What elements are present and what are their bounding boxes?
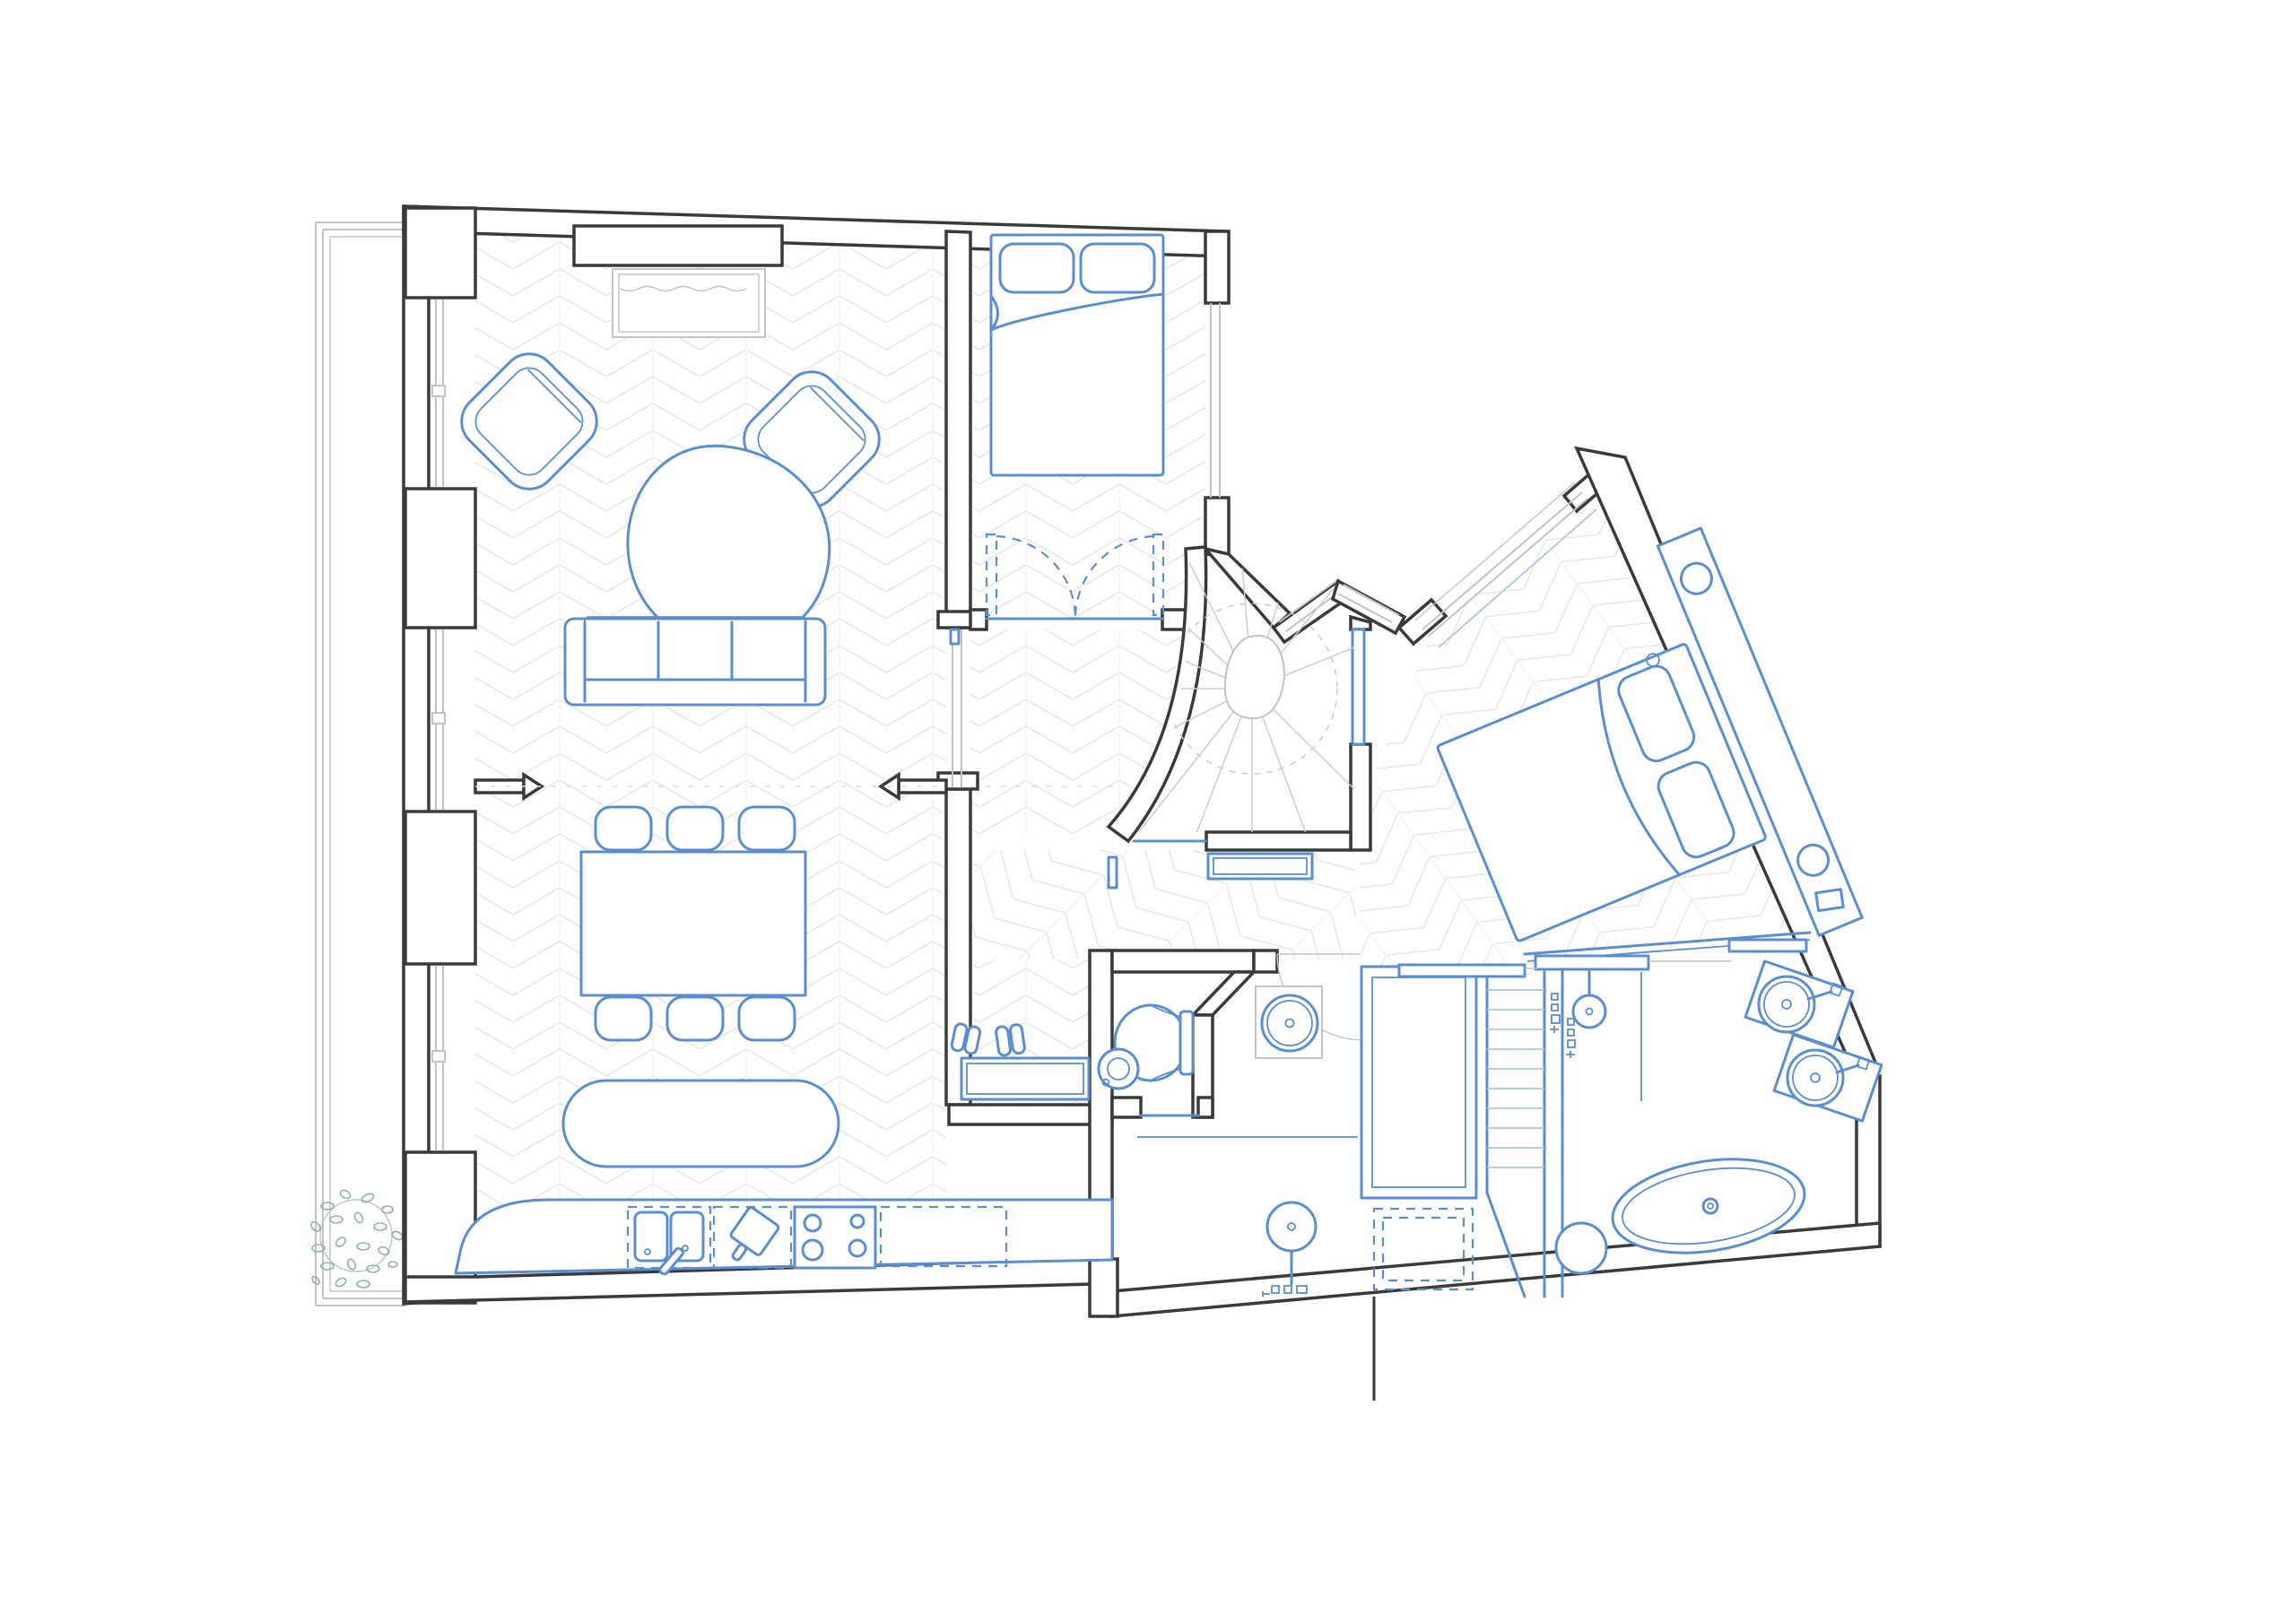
console-table: [961, 1058, 1089, 1099]
fireplace-chimney: [574, 226, 782, 265]
round-basin: [1262, 995, 1318, 1051]
chair: [596, 807, 651, 850]
bathroom: [1399, 940, 1882, 1273]
bedroom-south-wall-w: [970, 610, 987, 629]
double-bed: [991, 235, 1163, 475]
pillow: [1081, 244, 1154, 292]
corner-basin: [1099, 1049, 1138, 1089]
wall-stub-left: [475, 780, 524, 793]
window-1-mullion: [432, 386, 445, 396]
fireplace-hearth: [613, 269, 765, 337]
terrace: [309, 222, 405, 1306]
radiator: [1109, 857, 1117, 888]
wall-pier-2: [405, 489, 475, 628]
bath-shower: [1566, 970, 1641, 1101]
chair: [667, 807, 723, 850]
wc-bottom-wall-w: [1112, 1098, 1141, 1117]
pillow: [1000, 244, 1074, 292]
nightstand: [1816, 890, 1844, 911]
windows-left-wall: [432, 299, 445, 1150]
partition-living-upper: [946, 231, 970, 628]
pocket-door-edge: [951, 629, 959, 644]
wall-bedroom-east-upper: [1205, 231, 1229, 303]
wall-bottom-step: [1090, 1259, 1118, 1316]
wc-bottom-wall-e: [1198, 1098, 1213, 1117]
round-basin: [1787, 1050, 1843, 1106]
shelf-ladder: [1487, 972, 1544, 1297]
wall-hooks: [1550, 994, 1560, 1033]
window-3-mullion: [432, 1051, 445, 1062]
round-basin: [1759, 976, 1814, 1032]
stool: [1556, 1223, 1606, 1273]
walk-in-closet: [1361, 967, 1476, 1198]
sink-bowl-left: [635, 1212, 667, 1261]
sofa: [565, 617, 825, 705]
pocket-door: [952, 629, 961, 787]
dressing: [1361, 961, 1562, 1297]
tub-drain: [1703, 1199, 1718, 1213]
floor-plan-drawing: [0, 0, 2296, 1623]
chair: [739, 807, 795, 850]
terrace-border-caps: [316, 222, 405, 1306]
wall-pier-3: [405, 811, 475, 964]
dining-set: [581, 807, 805, 1040]
wall-diag-to-vestibule: [1205, 549, 1290, 628]
wall-pier-1: [405, 208, 475, 298]
stair-newel: [1225, 636, 1284, 718]
terrace-border: [316, 222, 323, 1306]
terrace-inner-line: [330, 237, 404, 1291]
window-bedroom-north: [1211, 303, 1220, 498]
chair: [596, 997, 651, 1040]
entry-door-leaf: [1352, 629, 1364, 744]
shower-top-wall: [1254, 950, 1277, 972]
corridor-bottom-wall: [949, 1105, 1112, 1124]
wc-top-wall: [1112, 950, 1254, 972]
wall-left-face: [404, 206, 429, 1304]
chair: [667, 997, 723, 1040]
chair: [739, 997, 795, 1040]
hall-bench: [1208, 854, 1312, 879]
wall-bedroom-east-lower: [1205, 498, 1229, 556]
dining-table: [581, 852, 805, 995]
vestibule-right-wall-bottom: [1351, 744, 1370, 850]
floor-plan-sheet: [0, 0, 2296, 1623]
window-2-mullion: [432, 713, 445, 724]
vestibule-bottom-wall: [1206, 832, 1351, 850]
kitchen-island: [563, 1081, 839, 1167]
wc-angled-wall: [1193, 972, 1254, 1015]
